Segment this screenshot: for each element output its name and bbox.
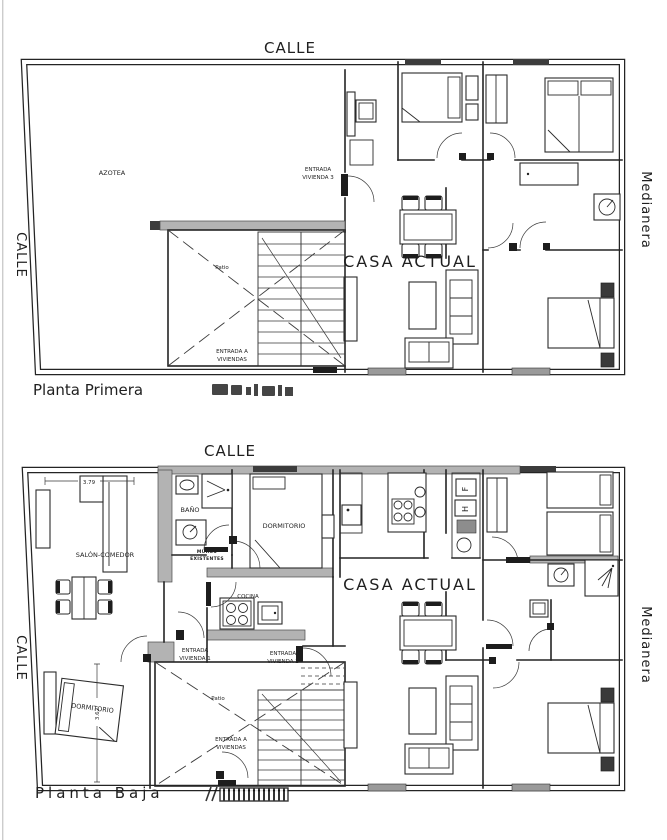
patio-label: Patio bbox=[211, 696, 225, 702]
vestibule-fixtures bbox=[347, 92, 376, 165]
wardrobe-icon bbox=[486, 75, 507, 123]
existing-wall bbox=[148, 642, 174, 662]
fridge-label: F bbox=[461, 486, 470, 491]
casa-actual-label: CASA ACTUAL bbox=[343, 252, 477, 271]
door-entrada-vivienda-3 bbox=[341, 174, 374, 202]
casa-actual-label: CASA ACTUAL bbox=[343, 575, 477, 594]
entrada-viviendas-label: ENTRADA A bbox=[216, 349, 248, 355]
entrada-viviendas-label: ENTRADA A bbox=[215, 737, 247, 743]
entrada-viv3-label: ENTRADA bbox=[305, 167, 331, 173]
twin-beds-icon bbox=[547, 472, 613, 555]
cocina-label: COCINA bbox=[237, 594, 259, 600]
loveseat-icon bbox=[405, 338, 453, 368]
door-entrada-vivienda-2 bbox=[296, 646, 331, 676]
window bbox=[512, 784, 550, 791]
door-arc bbox=[487, 133, 515, 160]
plan-title-baja: Planta Baja bbox=[35, 784, 164, 802]
bed-icon bbox=[548, 688, 614, 771]
entrada-viv2-label: VIVIENDA 2 bbox=[267, 659, 299, 665]
shower-icon bbox=[202, 474, 232, 508]
calle-top-label: CALLE bbox=[204, 442, 256, 460]
dining-table-icon bbox=[400, 196, 456, 258]
door-arc bbox=[489, 657, 519, 688]
coffee-table-icon bbox=[409, 282, 436, 329]
scale-stamp bbox=[212, 384, 293, 396]
double-bed-icon bbox=[250, 474, 334, 568]
window bbox=[512, 368, 550, 375]
shower-icon bbox=[585, 560, 618, 596]
bano-label: BAÑO bbox=[181, 505, 200, 514]
patio-primera bbox=[150, 221, 345, 366]
patio-baja bbox=[155, 662, 345, 786]
calle-left-label: CALLE bbox=[13, 635, 28, 681]
sofa-icon bbox=[446, 270, 478, 344]
loveseat-icon bbox=[405, 744, 453, 774]
washbasin-icon bbox=[548, 564, 574, 586]
floorplan-sheet: CALLE CALLE Medianera AZOTEA CASA ACTUAL… bbox=[0, 0, 667, 840]
coffee-table-icon bbox=[409, 688, 436, 734]
entrada-viv1-label: VIVIENDA 1 bbox=[179, 656, 211, 662]
plan-title-primera: Planta Primera bbox=[33, 381, 143, 399]
window bbox=[405, 59, 441, 65]
door-arc bbox=[204, 525, 229, 552]
bed-icon bbox=[548, 283, 614, 367]
existing-wall bbox=[207, 568, 333, 577]
sofa-icon bbox=[446, 676, 478, 750]
calle-top-label: CALLE bbox=[264, 39, 316, 57]
dining-table-icon bbox=[400, 602, 456, 664]
dining-table-icon bbox=[56, 577, 112, 619]
entrada-viv2-label: ENTRADA bbox=[270, 651, 296, 657]
stairs-icon bbox=[258, 232, 345, 366]
medianera-label: Medianera bbox=[638, 171, 653, 249]
scan-edge bbox=[2, 0, 3, 840]
kitchen-counter-icon bbox=[340, 473, 426, 533]
wardrobe-icon bbox=[487, 478, 507, 532]
dim-362-value: 3.62 bbox=[95, 708, 101, 720]
stairs-icon bbox=[258, 668, 345, 786]
door-arc bbox=[437, 133, 466, 160]
oven-label: H bbox=[461, 506, 470, 512]
door-arc bbox=[486, 620, 554, 651]
window bbox=[368, 784, 406, 791]
door-entrada-vivienda-1 bbox=[176, 612, 204, 640]
window bbox=[253, 466, 297, 472]
patio-label: Patio bbox=[215, 265, 229, 271]
existing-wall bbox=[158, 470, 172, 582]
bed-icon bbox=[402, 73, 478, 122]
entry-door-leaf bbox=[313, 367, 337, 373]
window bbox=[520, 466, 556, 472]
counter-icon bbox=[520, 163, 578, 185]
window bbox=[513, 59, 549, 65]
entrada-viv1-label: ENTRADA bbox=[182, 648, 208, 654]
water-heater-icon bbox=[594, 194, 620, 220]
door-arc bbox=[492, 537, 530, 563]
entrada-viviendas-label: VIVIENDAS bbox=[216, 745, 246, 751]
dim-379-value: 3.79 bbox=[83, 480, 96, 486]
muros-existentes-label: EXISTENTES bbox=[190, 556, 224, 562]
sofa-icon bbox=[36, 490, 50, 548]
entrada-viviendas-label: VIVIENDAS bbox=[217, 357, 247, 363]
cabinet-icon bbox=[344, 682, 357, 748]
calle-left-label: CALLE bbox=[13, 232, 28, 278]
double-bed-icon bbox=[545, 78, 613, 152]
existing-wall bbox=[207, 630, 305, 640]
floorplan-canvas: CALLE CALLE Medianera AZOTEA CASA ACTUAL… bbox=[0, 0, 667, 840]
microwave-icon bbox=[258, 602, 282, 624]
window bbox=[368, 368, 406, 375]
outer-wall-primera bbox=[24, 62, 622, 372]
door-arc bbox=[488, 222, 550, 251]
medianera-label: Medianera bbox=[638, 606, 653, 684]
bed-icon: DORMITORIO bbox=[44, 672, 123, 741]
plan-baja: 3.79 bbox=[13, 442, 653, 802]
washbasin-icon bbox=[176, 520, 206, 545]
azotea-label: AZOTEA bbox=[99, 169, 126, 177]
plan-primera: CALLE CALLE Medianera AZOTEA CASA ACTUAL… bbox=[13, 39, 653, 399]
door-entrada-viviendas bbox=[216, 752, 248, 786]
cabinet-icon bbox=[344, 277, 357, 341]
door-arc bbox=[121, 636, 151, 662]
appliances-icon: F H bbox=[452, 473, 480, 558]
toilet-icon bbox=[176, 476, 198, 494]
salon-comedor-label: SALÓN-COMEDOR bbox=[76, 550, 135, 559]
toilet-icon bbox=[530, 600, 548, 617]
dormitorio-top-label: DORMITORIO bbox=[263, 522, 306, 530]
entrada-viv3-label: VIVIENDA 3 bbox=[302, 175, 334, 181]
muros-existentes-label: MUROS bbox=[197, 549, 217, 555]
